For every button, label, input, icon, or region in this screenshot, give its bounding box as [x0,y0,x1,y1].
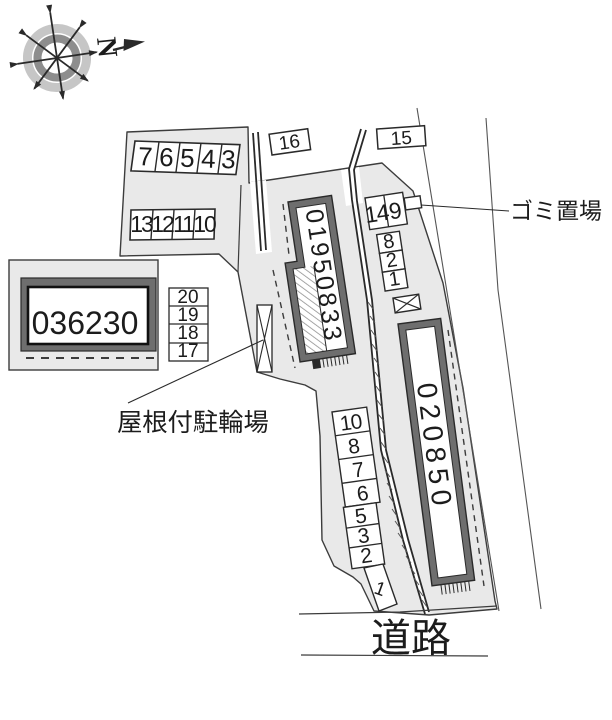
svg-text:036230: 036230 [32,305,139,341]
svg-text:7: 7 [138,141,154,171]
svg-text:12: 12 [151,211,174,237]
svg-text:11: 11 [173,211,194,237]
svg-text:15: 15 [390,128,413,150]
svg-text:5: 5 [180,143,196,173]
svg-text:3: 3 [221,144,237,174]
svg-text:10: 10 [193,211,216,237]
svg-text:16: 16 [278,131,302,155]
svg-text:6: 6 [159,142,175,172]
svg-text:17: 17 [177,341,198,362]
svg-text:13: 13 [130,211,153,237]
svg-text:10: 10 [339,410,364,436]
svg-text:N: N [90,36,123,59]
svg-text:4: 4 [201,143,217,173]
